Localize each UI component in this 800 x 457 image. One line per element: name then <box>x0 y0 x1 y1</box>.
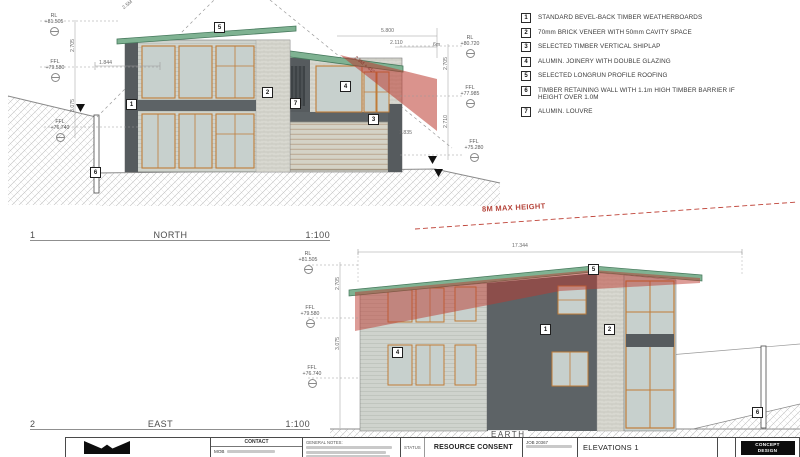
legend-label: 70mm BRICK VENEER WITH 50mm CAVITY SPACE <box>538 28 692 37</box>
level-label: FFL +77.985 <box>448 86 492 108</box>
contact-header: CONTACT <box>211 438 302 447</box>
marker-weatherboard: 1 <box>126 99 137 110</box>
address-line <box>526 445 572 448</box>
benchmark-icon <box>56 133 65 142</box>
company-logo <box>84 441 130 454</box>
marker-weatherboard: 1 <box>540 324 551 335</box>
sheet-title: ELEVATIONS 1 <box>583 443 639 452</box>
job-label: JOB <box>526 440 535 445</box>
legend-item: 4 ALUMIN. JOINERY WITH DOUBLE GLAZING <box>521 57 783 67</box>
dim-label: 1.835 <box>399 130 412 136</box>
job-cell: JOB 20367 <box>523 438 578 457</box>
level-value: +76.740 <box>290 372 334 378</box>
legend-key-7: 7 <box>521 107 531 117</box>
dim-label: 2.705 <box>443 57 449 70</box>
marker-brick: 2 <box>604 324 615 335</box>
north-view-title: 1 NORTH 1:100 <box>30 228 330 241</box>
max-height-line <box>415 202 798 229</box>
mob-label: MOB <box>214 449 224 454</box>
marker-louvre: 7 <box>290 98 301 109</box>
notes-header: GENERAL NOTES: <box>306 440 397 445</box>
legend-key-5: 5 <box>521 71 531 81</box>
marker-roof: 5 <box>588 264 599 275</box>
badge-line: DESIGN <box>758 448 777 454</box>
dim-label: 2.705 <box>335 277 341 290</box>
benchmark-icon <box>304 265 313 274</box>
level-value: +79.580 <box>33 66 77 72</box>
contact-cell: CONTACT MOB <box>211 438 303 457</box>
legend-key-6: 6 <box>521 86 531 96</box>
notes-line <box>306 451 386 454</box>
level-value: +75.280 <box>452 146 496 152</box>
dim-label: 17.344 <box>512 243 528 249</box>
general-notes-cell: GENERAL NOTES: <box>303 438 401 457</box>
materials-legend: 1 STANDARD BEVEL-BACK TIMBER WEATHERBOAR… <box>521 13 783 117</box>
elevation-sheet: 1 STANDARD BEVEL-BACK TIMBER WEATHERBOAR… <box>0 0 800 457</box>
level-value: +81.505 <box>286 258 330 264</box>
legend-item: 5 SELECTED LONGRUN PROFILE ROOFING <box>521 71 783 81</box>
east-view-title: 2 EAST 1:100 <box>30 417 310 430</box>
marker-roof: 5 <box>214 22 225 33</box>
level-value: +76.740 <box>38 126 82 132</box>
dim-label: 2.110 <box>390 40 403 46</box>
legend-label: ALUMIN. LOUVRE <box>538 107 593 116</box>
legend-key-4: 4 <box>521 57 531 67</box>
view-scale: 1:100 <box>285 419 310 429</box>
notes-line <box>306 446 392 449</box>
east-elevation-drawing <box>308 249 800 457</box>
benchmark-icon <box>51 73 60 82</box>
benchmark-icon <box>466 49 475 58</box>
legend-key-1: 1 <box>521 13 531 23</box>
concept-design-badge: CONCEPT DESIGN <box>741 441 795 455</box>
dim-label: 5.800 <box>381 28 394 34</box>
north-elevation-drawing <box>8 0 500 206</box>
level-value: +77.985 <box>448 92 492 98</box>
sheet-title-cell: ELEVATIONS 1 <box>578 438 718 457</box>
dim-label: 3.075 <box>335 337 341 350</box>
benchmark-icon <box>308 379 317 388</box>
view-number: 1 <box>30 230 35 240</box>
legend-label: SELECTED TIMBER VERTICAL SHIPLAP <box>538 42 660 51</box>
legend-item: 2 70mm BRICK VENEER WITH 50mm CAVITY SPA… <box>521 28 783 38</box>
status-label: STATUS <box>401 438 425 457</box>
status-cell: STATUS RESOURCE CONSENT <box>401 438 523 457</box>
dim-label: 3.075 <box>70 99 76 112</box>
level-label: FFL +75.280 <box>452 140 496 162</box>
legend-key-2: 2 <box>521 28 531 38</box>
level-label: FFL +79.580 <box>288 306 332 328</box>
status-value: RESOURCE CONSENT <box>425 444 522 451</box>
marker-shiplap: 3 <box>368 114 379 125</box>
legend-item: 3 SELECTED TIMBER VERTICAL SHIPLAP <box>521 42 783 52</box>
marker-retaining-wall: 6 <box>752 407 763 418</box>
level-label: RL +81.505 <box>32 14 76 36</box>
job-number: 20367 <box>536 440 548 445</box>
view-scale: 1:100 <box>305 230 330 240</box>
legend-label: STANDARD BEVEL-BACK TIMBER WEATHERBOARDS <box>538 13 702 22</box>
legend-label: ALUMIN. JOINERY WITH DOUBLE GLAZING <box>538 57 671 66</box>
badge-cell: CONCEPT DESIGN <box>736 438 799 457</box>
level-value: +79.580 <box>288 312 332 318</box>
benchmark-icon <box>470 153 479 162</box>
level-label: FFL +76.740 <box>290 366 334 388</box>
legend-key-3: 3 <box>521 42 531 52</box>
benchmark-icon <box>306 319 315 328</box>
legend-item: 6 TIMBER RETAINING WALL WITH 1.1m HIGH T… <box>521 86 783 103</box>
level-value: +81.505 <box>32 20 76 26</box>
phone-number-redacted <box>227 450 275 453</box>
dim-label: 6m <box>433 42 440 48</box>
marker-retaining-wall: 6 <box>90 167 101 178</box>
level-label: RL +80.720 <box>448 36 492 58</box>
view-number: 2 <box>30 419 35 429</box>
empty-cell <box>718 438 736 457</box>
benchmark-icon <box>50 27 59 36</box>
legend-item: 1 STANDARD BEVEL-BACK TIMBER WEATHERBOAR… <box>521 13 783 23</box>
legend-label: SELECTED LONGRUN PROFILE ROOFING <box>538 71 668 80</box>
level-value: +80.720 <box>448 42 492 48</box>
benchmark-icon <box>466 99 475 108</box>
dim-label: 1.844 <box>99 60 112 66</box>
title-block: CONTACT MOB GENERAL NOTES: STATUS RESOUR… <box>65 437 800 457</box>
marker-brick: 2 <box>262 87 273 98</box>
marker-joinery: 4 <box>340 81 351 92</box>
marker-joinery: 4 <box>392 347 403 358</box>
level-label: FFL +79.580 <box>33 60 77 82</box>
level-label: RL +81.505 <box>286 252 330 274</box>
company-logo-cell <box>66 438 211 457</box>
view-name: NORTH <box>154 230 188 240</box>
level-label: FFL +76.740 <box>38 120 82 142</box>
legend-label: TIMBER RETAINING WALL WITH 1.1m HIGH TIM… <box>538 86 748 103</box>
view-name: EAST <box>148 419 173 429</box>
dim-label: 2.710 <box>443 115 449 128</box>
legend-item: 7 ALUMIN. LOUVRE <box>521 107 783 117</box>
dim-label: 2.705 <box>70 39 76 52</box>
